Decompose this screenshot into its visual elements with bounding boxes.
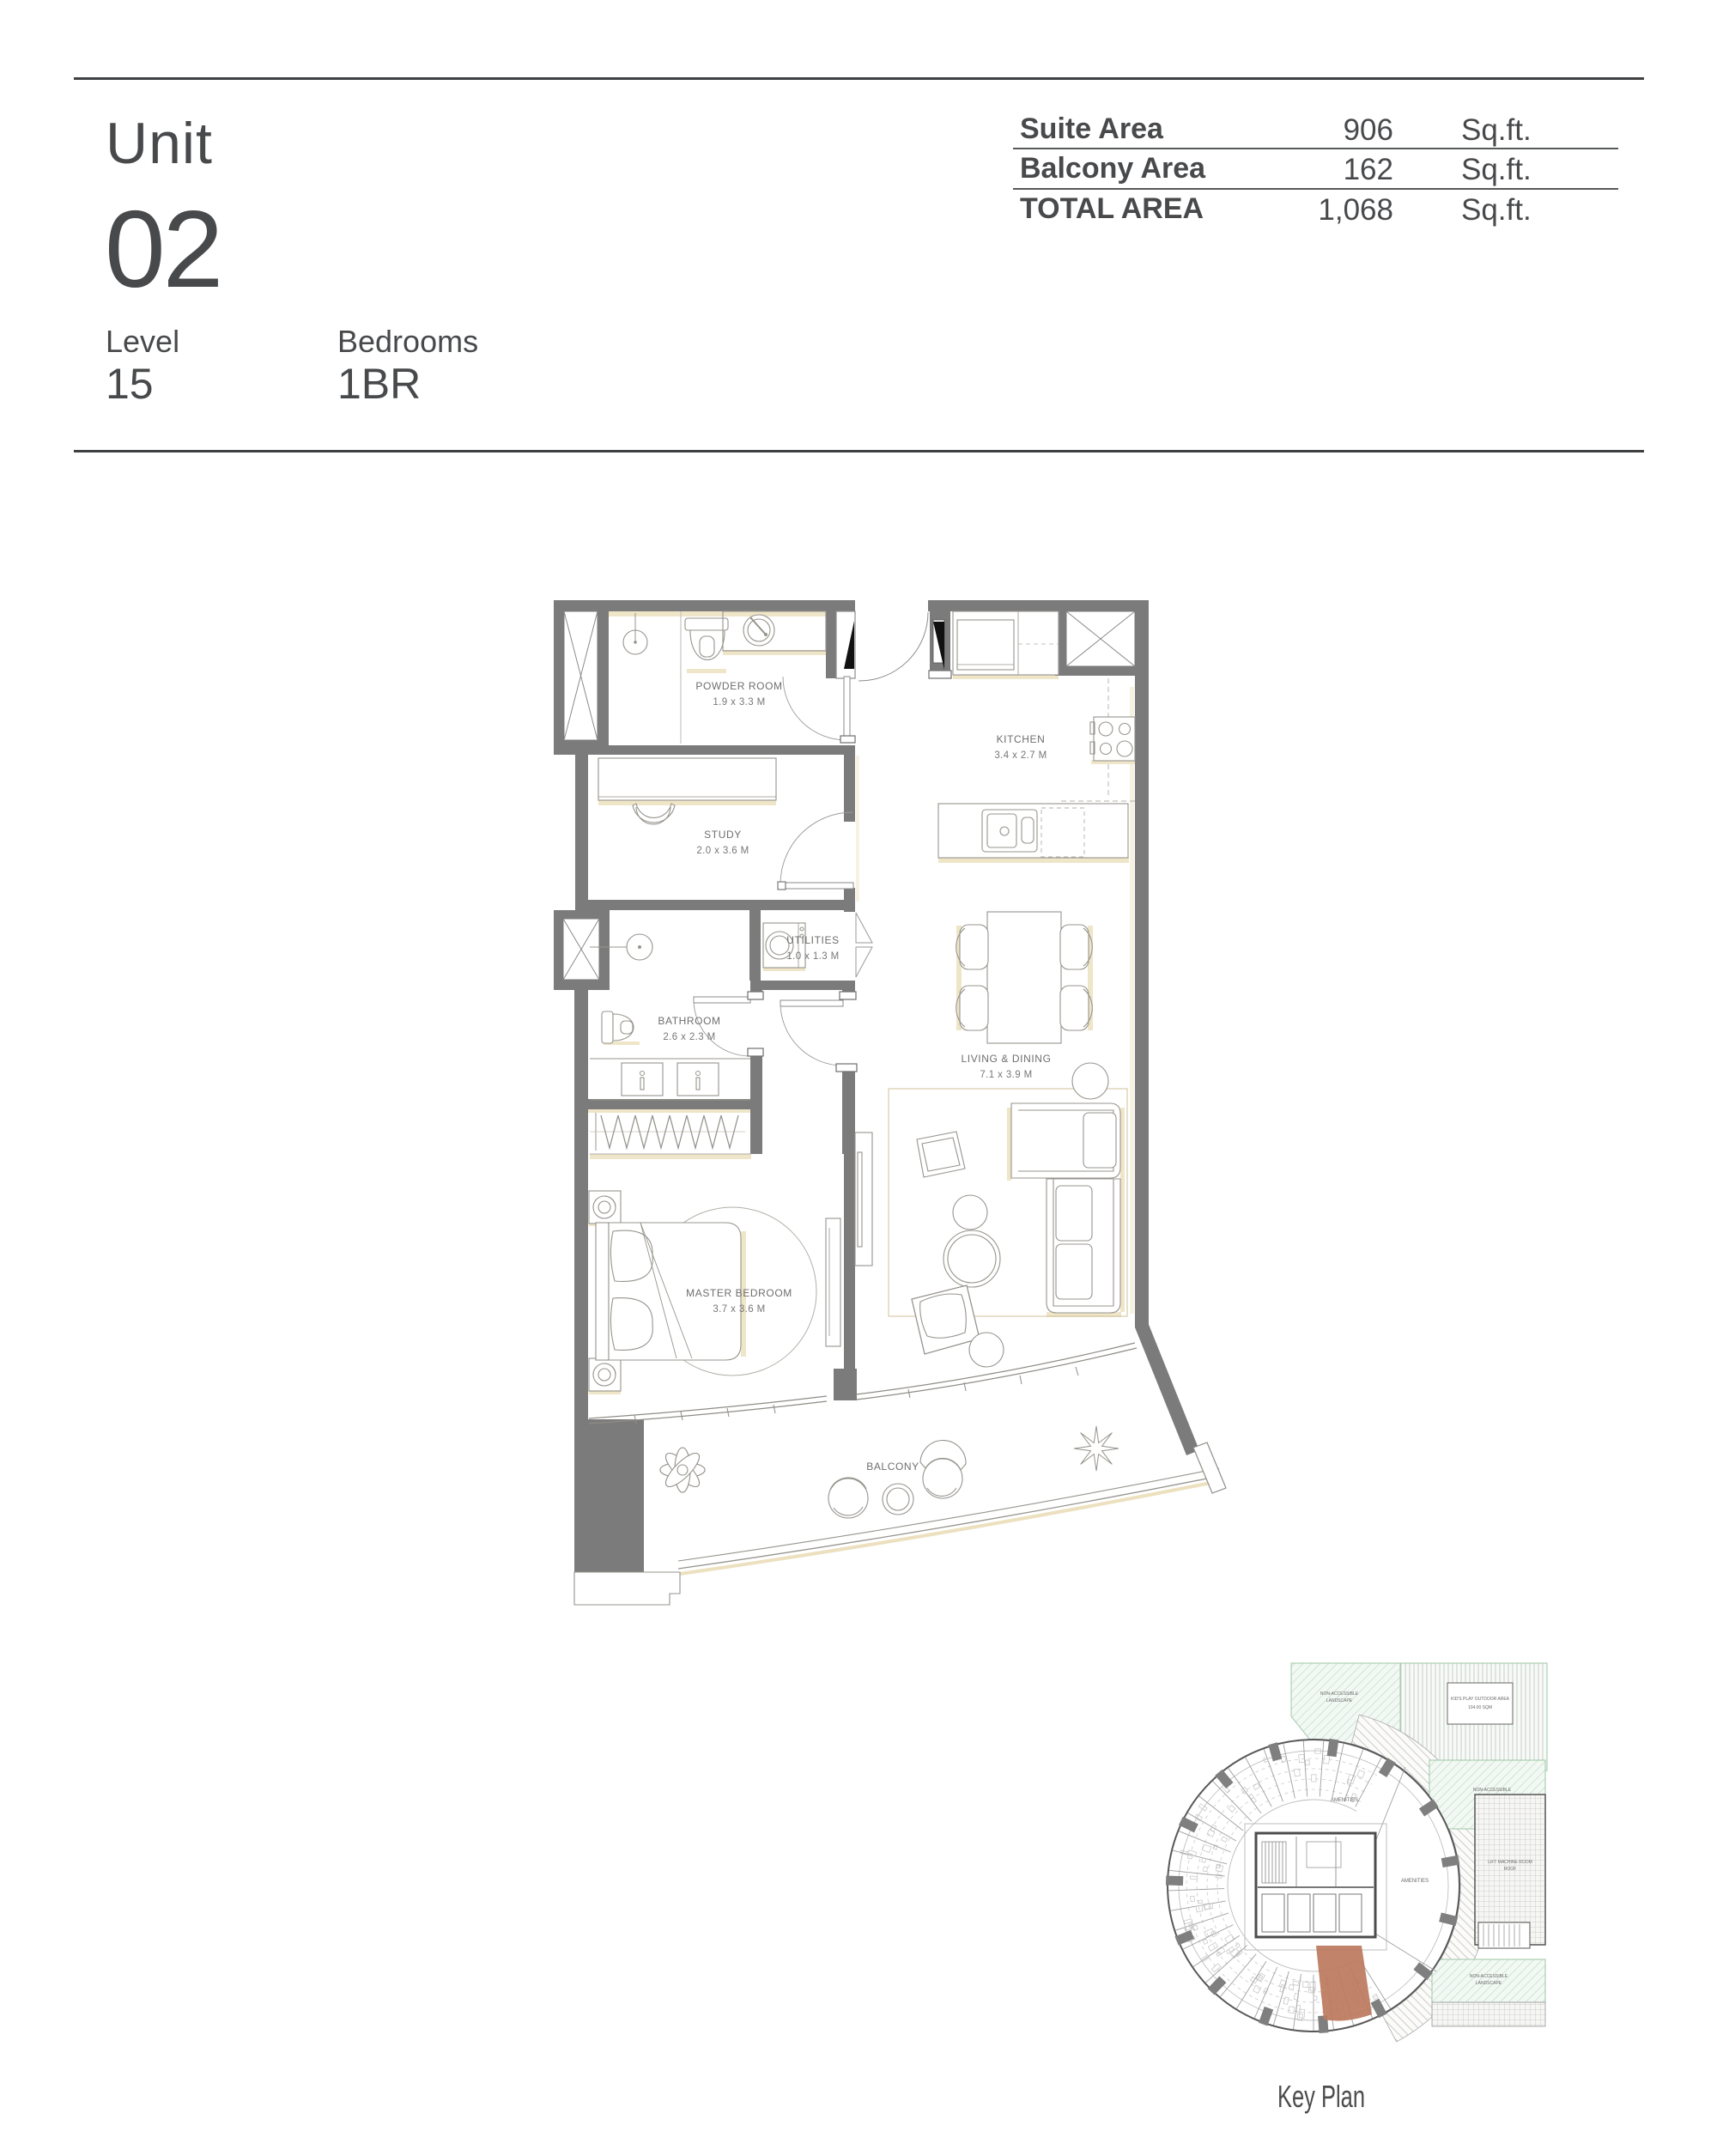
- svg-text:POWDER ROOM: POWDER ROOM: [695, 680, 782, 692]
- svg-text:AMENITIES: AMENITIES: [1401, 1879, 1429, 1884]
- svg-text:UTILITIES: UTILITIES: [786, 934, 839, 946]
- svg-text:3.7 x 3.6 M: 3.7 x 3.6 M: [713, 1304, 765, 1315]
- svg-text:2.6 x 2.3 M: 2.6 x 2.3 M: [663, 1032, 715, 1042]
- svg-text:NON-ACCESSIBLE: NON-ACCESSIBLE: [1320, 1691, 1359, 1697]
- svg-text:7.1 x 3.9 M: 7.1 x 3.9 M: [980, 1070, 1032, 1080]
- svg-text:LIFT MACHINE ROOM: LIFT MACHINE ROOM: [1488, 1860, 1532, 1865]
- svg-text:3.4 x 2.7 M: 3.4 x 2.7 M: [994, 750, 1047, 761]
- svg-text:BATHROOM: BATHROOM: [658, 1015, 720, 1027]
- svg-text:1.0 x 1.3 M: 1.0 x 1.3 M: [786, 951, 839, 962]
- svg-text:Key Plan: Key Plan: [1277, 2079, 1365, 2114]
- svg-text:KITCHEN: KITCHEN: [997, 733, 1046, 745]
- svg-text:AMENITIES: AMENITIES: [1331, 1798, 1358, 1803]
- svg-text:NON-ACCESSIBLE: NON-ACCESSIBLE: [1470, 1974, 1508, 1979]
- svg-text:NON-ACCESSIBLE: NON-ACCESSIBLE: [1473, 1788, 1512, 1793]
- svg-text:LANDSCAPE: LANDSCAPE: [1476, 1981, 1502, 1986]
- svg-text:104.00 SQM: 104.00 SQM: [1468, 1705, 1492, 1710]
- svg-text:STUDY: STUDY: [704, 829, 742, 841]
- svg-text:BALCONY: BALCONY: [866, 1461, 919, 1473]
- svg-text:2.0 x 3.6 M: 2.0 x 3.6 M: [696, 846, 749, 856]
- svg-text:KID'S PLAY OUTDOOR AREA: KID'S PLAY OUTDOOR AREA: [1451, 1697, 1510, 1702]
- svg-text:1.9 x 3.3 M: 1.9 x 3.3 M: [713, 697, 765, 708]
- svg-text:LANDSCAPE: LANDSCAPE: [1326, 1698, 1353, 1704]
- svg-text:LIVING & DINING: LIVING & DINING: [961, 1053, 1051, 1065]
- svg-text:MASTER BEDROOM: MASTER BEDROOM: [686, 1287, 792, 1299]
- svg-text:ROOF: ROOF: [1504, 1867, 1516, 1872]
